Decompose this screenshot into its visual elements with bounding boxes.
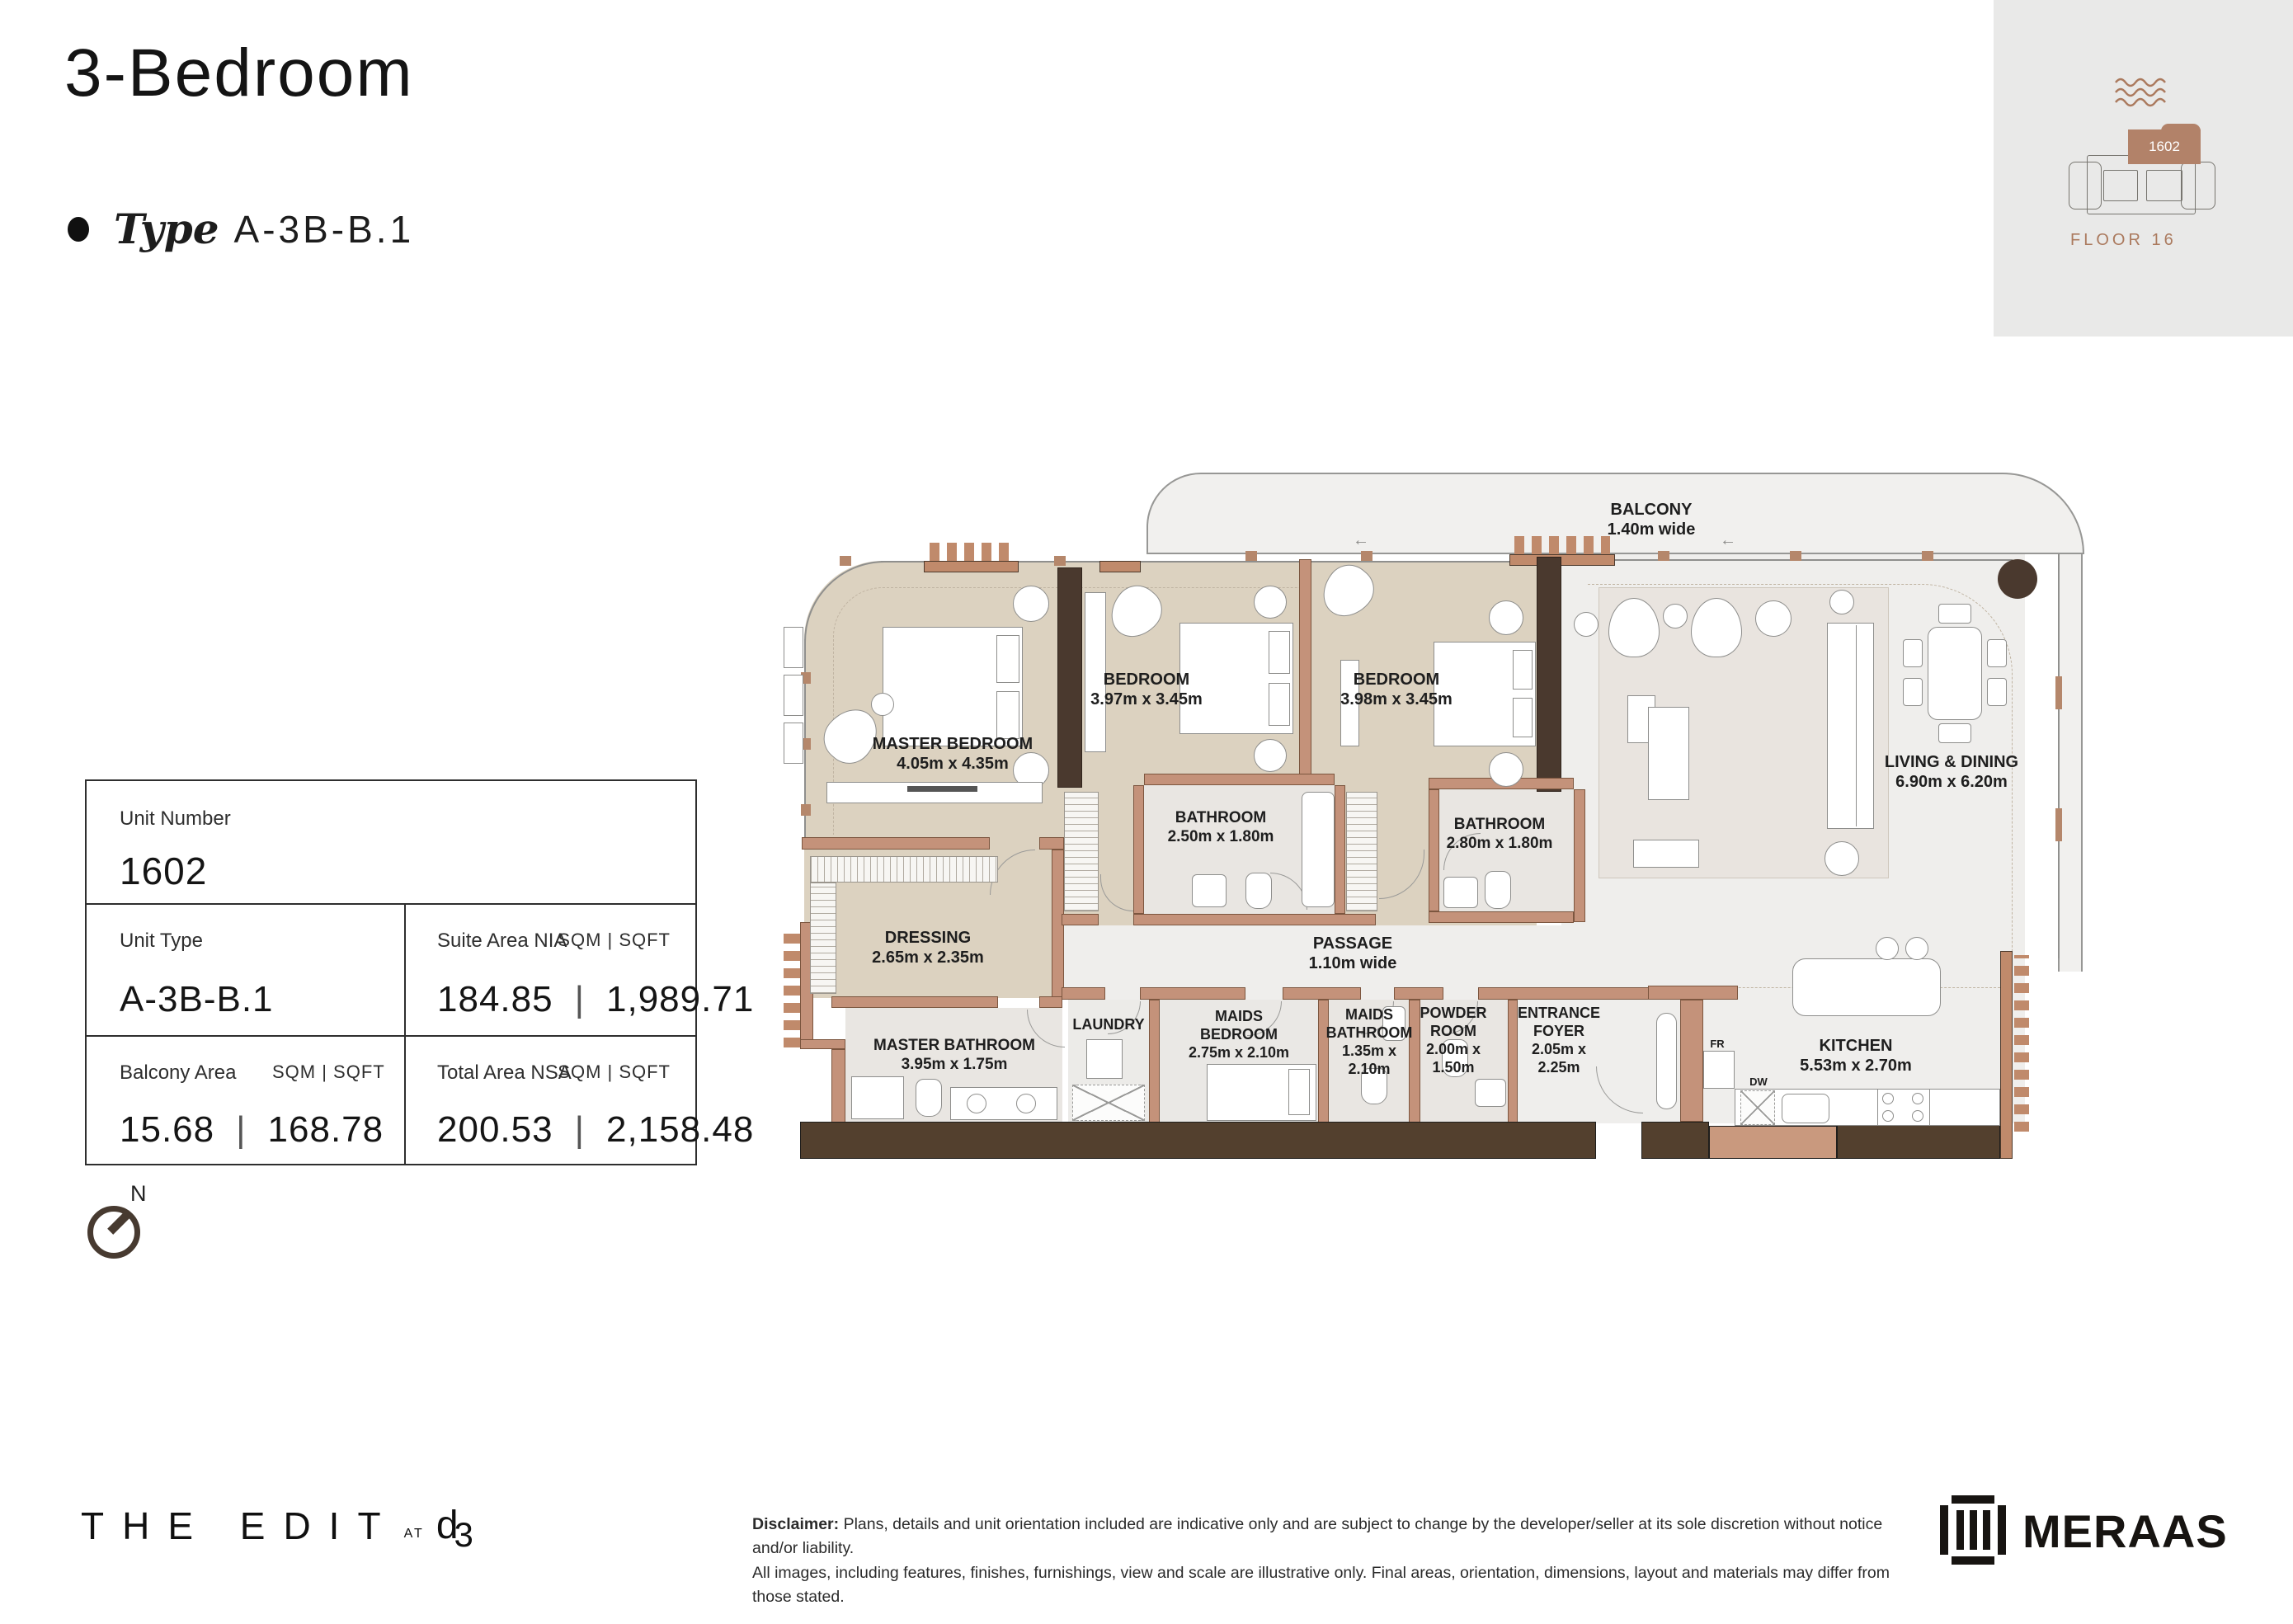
- brand-wordmark: THE EDIT: [81, 1504, 399, 1548]
- page-title: 3-Bedroom: [64, 35, 414, 112]
- meraas-wordmark: MERAAS: [2022, 1504, 2228, 1558]
- total-sqm: 200.53: [437, 1109, 553, 1151]
- dining-chair: [1987, 639, 2007, 667]
- room-name: BEDROOM: [1072, 670, 1221, 690]
- disclaimer: Disclaimer: Plans, details and unit orie…: [752, 1513, 1907, 1609]
- dining-chair: [1903, 639, 1923, 667]
- room-label-master-bedroom: MASTER BEDROOM 4.05m x 4.35m: [845, 734, 1060, 774]
- unit-type-row: Type A-3B-B.1: [68, 205, 414, 253]
- d3-3: 3: [454, 1515, 473, 1554]
- room-dim: 4.05m x 4.35m: [845, 754, 1060, 774]
- shower: [851, 1076, 904, 1119]
- kitchen-island: [1792, 958, 1941, 1016]
- planter-bar: [924, 561, 1019, 572]
- room-dim: 3.95m x 1.75m: [843, 1055, 1066, 1074]
- nightstand: [1254, 739, 1287, 772]
- room-name: MASTER BEDROOM: [845, 734, 1060, 754]
- wall-passage-top: [1062, 914, 1099, 925]
- wall-service-top: [1478, 987, 1650, 1000]
- room-dim: 2.75m x 2.10m: [1185, 1044, 1292, 1062]
- room-name: KITCHEN: [1765, 1036, 1947, 1056]
- column: [1998, 559, 2037, 599]
- balcony-sqm: 15.68: [120, 1109, 214, 1151]
- planter-teeth: [930, 543, 1015, 561]
- suite-sqft: 1,989.71: [606, 979, 754, 1020]
- dressing-wardrobe: [810, 883, 836, 994]
- room-dim: 1.35m x 2.10m: [1325, 1043, 1414, 1079]
- mask: [784, 1049, 831, 1127]
- washer-icon: [1072, 1085, 1145, 1121]
- total-area-label: Total Area NSA: [437, 1061, 572, 1085]
- pillow: [996, 691, 1019, 739]
- mullion-tick: [1245, 551, 1257, 561]
- pillow: [1513, 698, 1533, 737]
- total-area-value: 200.53 | 2,158.48: [437, 1109, 754, 1151]
- basin: [967, 1094, 986, 1113]
- burner: [1882, 1110, 1894, 1122]
- exterior-wall-band: [800, 1122, 1596, 1159]
- room-name: BEDROOM: [1322, 670, 1471, 690]
- wall-passage-top: [1429, 911, 1574, 923]
- value-separator: |: [575, 979, 585, 1020]
- dining-chair: [1987, 678, 2007, 706]
- room-name: DRESSING: [850, 928, 1006, 948]
- mullion-tick: [840, 556, 851, 566]
- nightstand: [1013, 586, 1049, 622]
- wall-service-top: [1283, 987, 1361, 1000]
- the-edit-logo: THE EDIT AT d3: [81, 1503, 478, 1548]
- pillow: [1269, 683, 1290, 726]
- room-name: BATHROOM: [1146, 808, 1295, 827]
- planter-box: [784, 723, 803, 764]
- room-dim: 6.90m x 6.20m: [1853, 772, 2051, 792]
- d3-logo: d3: [436, 1503, 478, 1548]
- toilet: [1485, 871, 1511, 909]
- wall-bath1-left: [1133, 785, 1144, 914]
- room-dim: 1.10m wide: [1278, 953, 1427, 973]
- laundry-sink: [1086, 1039, 1123, 1079]
- balcony-arrow-icon: ←: [1353, 531, 1369, 550]
- room-name: POWDER ROOM: [1408, 1005, 1499, 1041]
- meraas-bar: [1940, 1505, 1948, 1555]
- exterior-wall-band: [1837, 1124, 2000, 1159]
- meraas-bar: [1998, 1505, 2006, 1555]
- balcony-area-label: Balcony Area: [120, 1061, 236, 1085]
- tv-icon: [907, 786, 977, 792]
- meraas-bar: [1970, 1510, 1977, 1550]
- table-divider: [87, 903, 695, 905]
- unit-type-value: A-3B-B.1: [120, 979, 274, 1020]
- suite-area-units: SQM | SQFT: [558, 930, 671, 951]
- room-dim: 3.97m x 3.45m: [1072, 690, 1221, 709]
- side-table: [871, 693, 894, 716]
- room-label-kitchen: KITCHEN 5.53m x 2.70m: [1765, 1036, 1947, 1076]
- room-dim: 2.00m x 1.50m: [1408, 1041, 1499, 1077]
- room-name: MASTER BATHROOM: [843, 1036, 1066, 1055]
- passage-closet: [1346, 792, 1377, 911]
- room-label-master-bathroom: MASTER BATHROOM 3.95m x 1.75m: [843, 1036, 1066, 1074]
- room-label-dressing: DRESSING 2.65m x 2.35m: [850, 928, 1006, 968]
- floorplan: ← ← BALCONY 1.40m wide MASTER BEDROOM 4.…: [784, 462, 2095, 1179]
- wall-master-bottom: [802, 837, 990, 850]
- mullion-tick: [2055, 808, 2062, 841]
- building-court-right: [2146, 170, 2182, 201]
- bathtub: [1302, 792, 1335, 907]
- meraas-bar: [1956, 1510, 1964, 1550]
- ottoman: [1825, 841, 1859, 876]
- mullion-tick: [1922, 551, 1933, 561]
- fridge-label: FR: [1701, 1038, 1734, 1050]
- room-name: LIVING & DINING: [1853, 752, 2051, 772]
- value-separator: |: [236, 1109, 246, 1151]
- sink: [1443, 877, 1478, 908]
- table-divider: [404, 903, 406, 1164]
- wall-foyer-T: [1648, 986, 1738, 1000]
- planter-bar: [1509, 554, 1615, 566]
- wall-service-top: [1062, 987, 1105, 1000]
- building-court-left: [2103, 170, 2138, 201]
- mullion-tick: [2055, 676, 2062, 709]
- total-sqft: 2,158.48: [606, 1109, 754, 1151]
- passage-closet: [1064, 792, 1099, 911]
- toilet: [916, 1079, 942, 1117]
- brand-at: AT: [404, 1527, 425, 1542]
- pivot-door: [1656, 1013, 1677, 1109]
- glass-wall-right: [2058, 554, 2060, 958]
- room-dim: 1.40m wide: [1561, 520, 1742, 539]
- unit-type-label: Unit Type: [120, 930, 203, 953]
- wall-masterbath-top: [1039, 996, 1062, 1008]
- total-area-units: SQM | SQFT: [558, 1061, 671, 1083]
- wall-masterbath-top: [831, 996, 998, 1008]
- wall-bath1-top: [1144, 774, 1335, 785]
- burner: [1882, 1093, 1894, 1104]
- nightstand: [1254, 586, 1287, 619]
- burner: [1912, 1093, 1923, 1104]
- wall-bath2-right: [1574, 789, 1585, 922]
- suite-area-label: Suite Area NIA: [437, 930, 567, 953]
- disclaimer-line1: Plans, details and unit orientation incl…: [752, 1515, 1882, 1557]
- suite-area-value: 184.85 | 1,989.71: [437, 979, 754, 1020]
- mullion-tick: [1361, 551, 1373, 561]
- wall-passage-top: [1133, 914, 1376, 925]
- sofa-line: [1856, 625, 1857, 826]
- meraas-bar: [1952, 1495, 1994, 1504]
- toilet: [1245, 873, 1272, 909]
- balcony-area-value: 15.68 | 168.78: [120, 1109, 384, 1151]
- dining-chair: [1903, 678, 1923, 706]
- floor-label: FLOOR 16: [2070, 231, 2177, 250]
- room-name: BATHROOM: [1429, 815, 1570, 834]
- value-separator: |: [575, 1109, 585, 1151]
- wall-step: [800, 1039, 845, 1049]
- pillow: [1288, 1069, 1310, 1115]
- room-label-balcony: BALCONY 1.40m wide: [1561, 500, 1742, 540]
- kitchen-right-wall: [2000, 951, 2013, 1159]
- exterior-wall-band-light: [1709, 1126, 1837, 1159]
- room-label-maids-bathroom: MAIDS BATHROOM 1.35m x 2.10m: [1325, 1006, 1414, 1079]
- stool: [1905, 937, 1928, 960]
- sink: [1192, 874, 1227, 907]
- type-value: A-3B-B.1: [234, 207, 415, 252]
- pillow: [996, 635, 1019, 683]
- room-dim: 2.80m x 1.80m: [1429, 834, 1570, 853]
- disclaimer-line2: All images, including features, finishes…: [752, 1564, 1890, 1606]
- exterior-wall-band: [1641, 1122, 1709, 1159]
- room-label-maids-bedroom: MAIDS BEDROOM 2.75m x 2.10m: [1185, 1008, 1292, 1062]
- side-table: [1829, 590, 1854, 614]
- room-name: BALCONY: [1561, 500, 1742, 520]
- stool: [1876, 937, 1899, 960]
- room-label-passage: PASSAGE 1.10m wide: [1278, 934, 1427, 974]
- room-label-powder-room: POWDER ROOM 2.00m x 1.50m: [1408, 1005, 1499, 1077]
- pillow: [1269, 631, 1290, 674]
- room-label-bedroom2: BEDROOM 3.98m x 3.45m: [1322, 670, 1471, 710]
- nightstand: [1489, 752, 1523, 787]
- tv-console: [826, 782, 1043, 803]
- meraas-logo-icon: [1940, 1495, 2006, 1565]
- side-table: [1574, 612, 1599, 637]
- mullion-tick: [1658, 551, 1669, 561]
- compass-north-label: N: [130, 1181, 147, 1207]
- room-label-bathroom2: BATHROOM 2.80m x 1.80m: [1429, 815, 1570, 853]
- unit-number-value: 1602: [120, 849, 207, 893]
- dining-table: [1928, 627, 1982, 720]
- basin: [1016, 1094, 1036, 1113]
- room-name: PASSAGE: [1278, 934, 1427, 953]
- fridge: [1703, 1051, 1735, 1089]
- balcony-side-strip: [2058, 554, 2083, 972]
- room-label-bedroom1: BEDROOM 3.97m x 3.45m: [1072, 670, 1221, 710]
- planter-teeth-left: [784, 934, 800, 1047]
- console: [1633, 840, 1699, 868]
- room-name: MAIDS BEDROOM: [1185, 1008, 1292, 1044]
- coffee-table: [1648, 707, 1689, 800]
- pillow: [1513, 650, 1533, 690]
- wall-foyer-stem: [1680, 1000, 1703, 1122]
- sink: [1475, 1079, 1506, 1107]
- dark-wall: [1537, 557, 1561, 792]
- planter-bar: [1099, 561, 1141, 572]
- wall-master-bottom: [1039, 837, 1064, 850]
- room-dim: 5.53m x 2.70m: [1765, 1056, 1947, 1076]
- room-name: ENTRANCE FOYER: [1509, 1005, 1608, 1041]
- mullion-tick: [1054, 556, 1066, 566]
- room-dim: 2.05m x 2.25m: [1509, 1041, 1608, 1077]
- room-label-entrance-foyer: ENTRANCE FOYER 2.05m x 2.25m: [1509, 1005, 1608, 1077]
- meraas-bar: [1983, 1510, 1990, 1550]
- type-label: Type: [114, 205, 219, 253]
- side-table: [1663, 604, 1688, 628]
- disclaimer-bold: Disclaimer:: [752, 1515, 839, 1533]
- nightstand: [1489, 600, 1523, 635]
- wall-bath1-right: [1335, 785, 1345, 914]
- dining-chair: [1938, 723, 1971, 743]
- sofa: [1827, 623, 1874, 829]
- dining-chair: [1938, 604, 1971, 624]
- burner: [1912, 1110, 1923, 1122]
- mullion-tick: [1790, 551, 1801, 561]
- table-divider: [87, 1035, 695, 1037]
- room-name: LAUNDRY: [1059, 1016, 1158, 1034]
- balcony-sqft: 168.78: [268, 1109, 384, 1151]
- round-table: [1755, 600, 1792, 637]
- room-name: MAIDS BATHROOM: [1325, 1006, 1414, 1043]
- room-label-living-dining: LIVING & DINING 6.90m x 6.20m: [1853, 752, 2051, 793]
- unit-info-table: Unit Number 1602 Unit Type A-3B-B.1 Suit…: [85, 779, 697, 1165]
- room-label-laundry: LAUNDRY: [1059, 1016, 1158, 1034]
- mullion-tick: [801, 804, 811, 816]
- dishwasher-icon: [1740, 1090, 1775, 1125]
- planter-box: [784, 675, 803, 716]
- wall-service-top: [1394, 987, 1443, 1000]
- unit-number-label: Unit Number: [120, 807, 231, 831]
- dishwasher-label: DW: [1742, 1076, 1775, 1088]
- bullet-icon: [68, 217, 89, 242]
- glass-wall: [1613, 559, 2013, 561]
- floor-locator-panel: 1602 FLOOR 16: [1994, 0, 2293, 337]
- room-dim: 2.65m x 2.35m: [850, 948, 1006, 967]
- room-label-bathroom1: BATHROOM 2.50m x 1.80m: [1146, 808, 1295, 846]
- room-dim: 2.50m x 1.80m: [1146, 827, 1295, 846]
- balcony-area-units: SQM | SQFT: [272, 1061, 385, 1083]
- planter-box: [784, 627, 803, 668]
- wall-service-top: [1140, 987, 1245, 1000]
- planter-teeth-right: [2014, 955, 2029, 1132]
- unit-number-badge: 1602: [2128, 129, 2201, 164]
- room-dim: 3.98m x 3.45m: [1322, 690, 1471, 709]
- dressing-wardrobe: [810, 856, 998, 883]
- kitchen-sink: [1782, 1094, 1829, 1123]
- water-waves-icon: [2114, 76, 2172, 112]
- outer-wall: [881, 561, 927, 563]
- wall-bed1-bed2: [1299, 559, 1311, 775]
- meraas-bar: [1952, 1556, 1994, 1565]
- suite-sqm: 184.85: [437, 979, 553, 1020]
